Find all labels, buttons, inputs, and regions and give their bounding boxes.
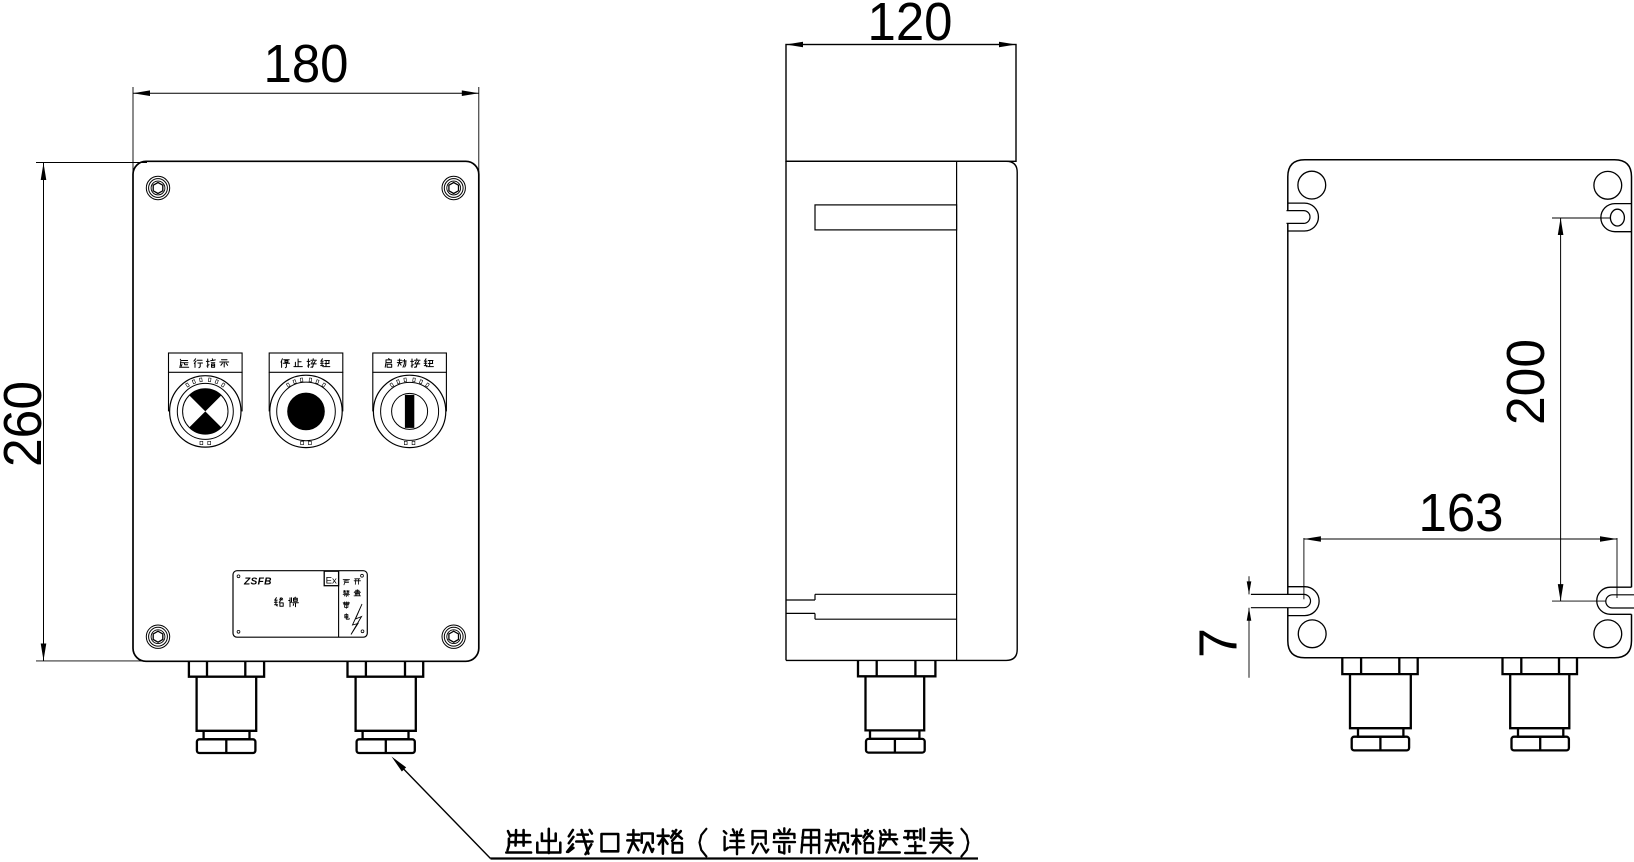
svg-text:120: 120: [868, 0, 953, 52]
svg-text:163: 163: [1419, 483, 1504, 543]
svg-text:260: 260: [0, 381, 53, 467]
svg-text:ZSFB: ZSFB: [243, 576, 272, 587]
svg-text:7: 7: [1189, 628, 1249, 658]
svg-text:200: 200: [1496, 339, 1556, 425]
svg-text:Ex: Ex: [326, 575, 337, 586]
svg-text:180: 180: [264, 34, 349, 94]
